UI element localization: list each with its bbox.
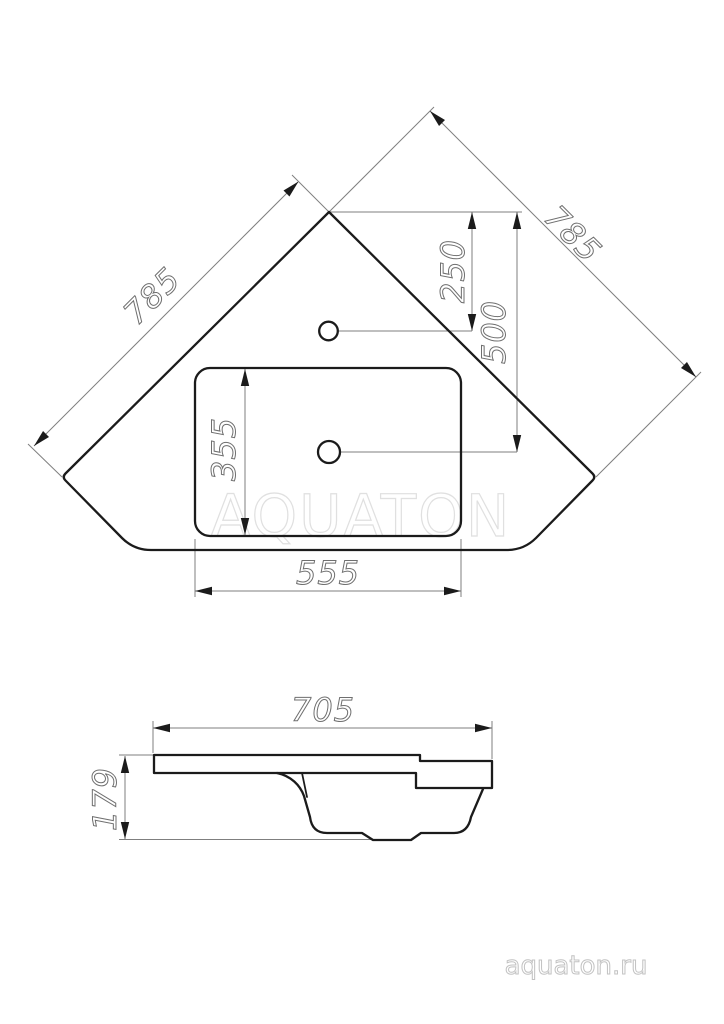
- side-view-object: [154, 755, 492, 840]
- profile-bowl-outline: [277, 773, 483, 840]
- aquaton-watermark: AQUATON: [211, 482, 511, 550]
- extension-line: [329, 107, 434, 212]
- dim-label-500: 500: [475, 300, 513, 364]
- side-view: 705 179: [86, 691, 492, 840]
- dim-label-785-left: 785: [116, 260, 188, 332]
- dim-label-355: 355: [205, 417, 243, 481]
- side-view-arrowheads: [121, 724, 492, 839]
- side-view-dimension-lines: [119, 721, 492, 840]
- dim-label-705: 705: [291, 691, 355, 729]
- dim-label-555: 555: [296, 554, 360, 592]
- drain-hole: [318, 441, 340, 463]
- profile-top-outline: [154, 755, 492, 788]
- extension-line: [292, 175, 329, 212]
- extension-line: [596, 372, 701, 477]
- dim-line-785-left: [34, 182, 298, 446]
- technical-drawing-page: AQUATON: [0, 0, 724, 1024]
- extension-line: [28, 444, 62, 477]
- faucet-hole: [319, 322, 338, 341]
- website-label: aquaton.ru: [505, 951, 648, 981]
- dim-label-785-right: 785: [537, 198, 609, 270]
- side-view-dimension-labels: 705 179: [86, 691, 355, 831]
- dim-label-179: 179: [86, 767, 124, 831]
- washbasin-dimension-drawing: AQUATON: [0, 0, 724, 1024]
- dim-label-250: 250: [434, 239, 472, 303]
